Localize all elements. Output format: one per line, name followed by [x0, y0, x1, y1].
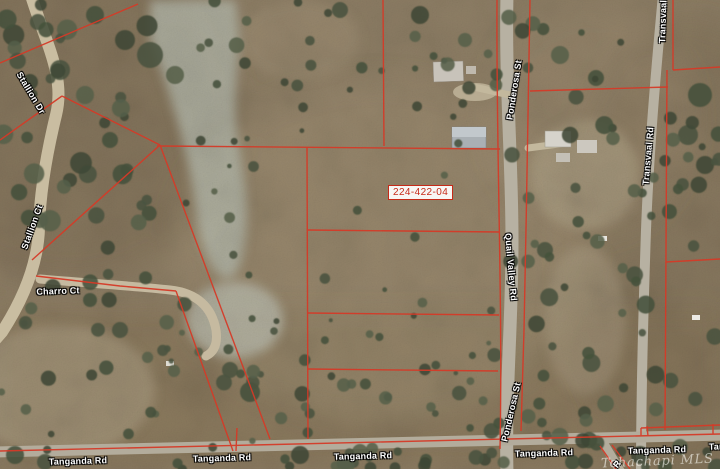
- road-label-tanganda-3: Tanganda Rd: [334, 450, 393, 462]
- map-canvas[interactable]: Stallion Dr Stallion Ct Charro Ct Ponder…: [0, 0, 720, 469]
- road-label-tanganda-1: Tanganda Rd: [49, 455, 108, 467]
- road-label-transvaal-rd-north: Transvaal Rd: [657, 0, 669, 43]
- road-label-tanganda-6: Tanganda Rd: [709, 440, 720, 452]
- parcel-id-label: 224-422-04: [388, 185, 453, 200]
- road-label-tanganda-4: Tanganda Rd: [515, 447, 574, 459]
- terrain-svg: [0, 0, 720, 469]
- road-label-charro-ct: Charro Ct: [36, 285, 80, 297]
- road-label-tanganda-2: Tanganda Rd: [193, 452, 252, 464]
